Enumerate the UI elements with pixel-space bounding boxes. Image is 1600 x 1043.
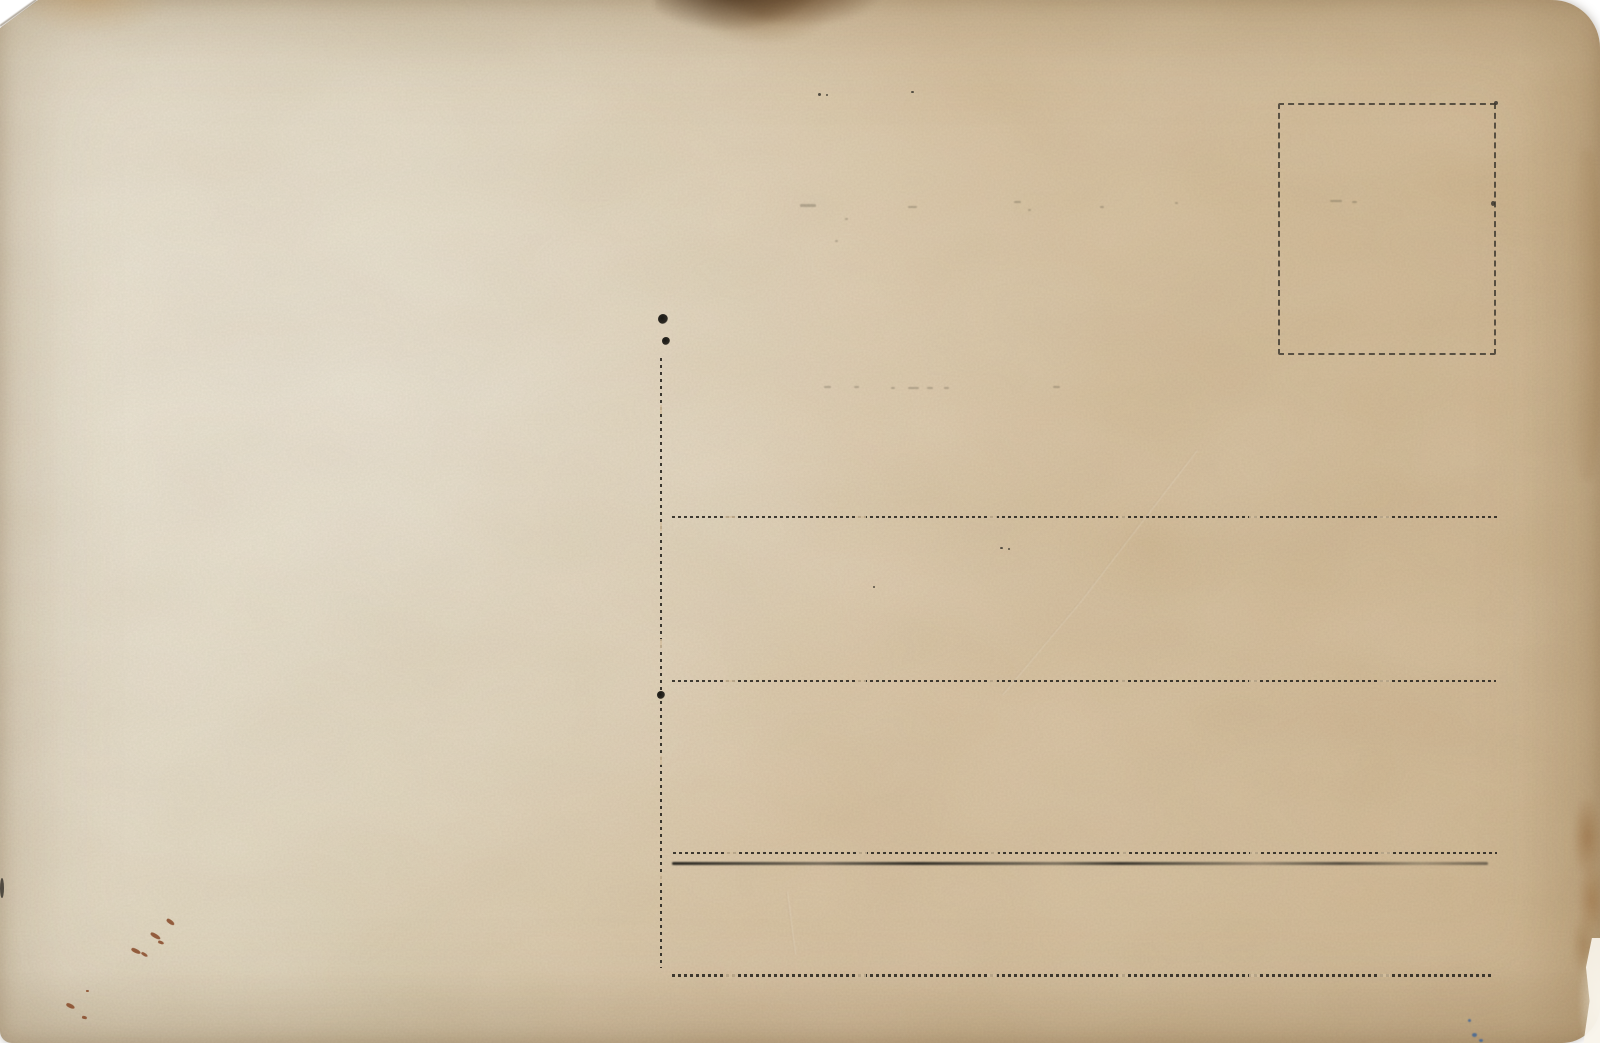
scan-background [0, 0, 1600, 1043]
crease [1001, 601, 1081, 695]
crease [1079, 449, 1198, 602]
postcard [0, 0, 1600, 1043]
crease [786, 892, 796, 954]
creases-layer [0, 0, 1600, 1043]
